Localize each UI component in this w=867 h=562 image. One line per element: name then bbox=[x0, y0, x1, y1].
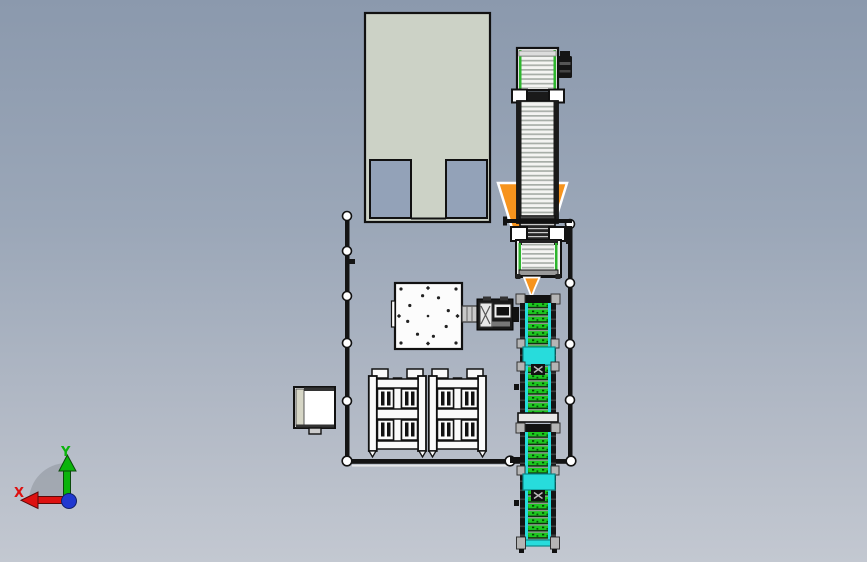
side-bracket bbox=[517, 362, 525, 371]
cabinet-bottom-edge bbox=[296, 425, 334, 428]
head-motor bbox=[558, 51, 572, 78]
head-cross-bar bbox=[526, 92, 550, 101]
section-end-plate bbox=[518, 413, 558, 422]
origin-ball bbox=[62, 494, 77, 509]
side-stub bbox=[514, 312, 519, 318]
pallet-rack-right[interactable] bbox=[429, 369, 486, 457]
chain-conveyor-2[interactable] bbox=[510, 423, 560, 553]
chain-conveyor-1[interactable] bbox=[514, 294, 560, 422]
frame-stub bbox=[510, 457, 520, 463]
rotary-table[interactable] bbox=[392, 283, 463, 349]
foot bbox=[519, 549, 524, 553]
cad-viewport[interactable]: X Y bbox=[0, 0, 867, 562]
side-stub bbox=[514, 500, 519, 506]
hopper[interactable] bbox=[365, 13, 490, 222]
part-marker bbox=[531, 490, 545, 501]
drop-arrow bbox=[524, 278, 540, 298]
model-canvas[interactable]: X Y bbox=[0, 0, 867, 562]
pallet-carrier[interactable] bbox=[523, 474, 555, 490]
motor-base bbox=[492, 322, 510, 327]
transfer-bottom-bar bbox=[519, 270, 558, 276]
transfer-edge-left bbox=[519, 243, 522, 272]
pallet-carrier[interactable] bbox=[523, 347, 555, 365]
foot-bracket bbox=[551, 537, 560, 549]
foot bbox=[552, 549, 557, 553]
transfer-conveyor[interactable] bbox=[516, 240, 562, 279]
corner-bracket bbox=[516, 423, 525, 433]
hopper-opening-right bbox=[446, 160, 487, 218]
corner-bracket bbox=[551, 294, 560, 304]
frame-notch bbox=[348, 259, 355, 264]
corner-bracket bbox=[516, 294, 525, 304]
control-cabinet[interactable] bbox=[294, 387, 335, 434]
foot-bracket bbox=[517, 537, 526, 549]
cabinet-top-edge bbox=[304, 388, 334, 392]
head-slats bbox=[521, 51, 554, 88]
corner-bracket bbox=[551, 423, 560, 433]
table-tab bbox=[392, 301, 396, 327]
transfer-edge-right bbox=[555, 243, 558, 272]
part-marker bbox=[531, 364, 545, 375]
motor-shaft bbox=[462, 306, 477, 322]
frame-highlight bbox=[352, 465, 512, 467]
transfer-foot bbox=[516, 274, 521, 279]
side-stub bbox=[514, 384, 519, 390]
side-bracket bbox=[551, 362, 559, 371]
mount-block bbox=[511, 227, 527, 241]
x-axis-label: X bbox=[14, 486, 24, 501]
tail-axle bbox=[505, 219, 572, 223]
transfer-slats bbox=[522, 243, 554, 271]
axle-cap bbox=[503, 217, 507, 226]
belt-slats bbox=[522, 103, 554, 222]
pallet-rack-left[interactable] bbox=[369, 369, 426, 457]
head-roller bbox=[519, 51, 556, 56]
cabinet-hinge-strip bbox=[296, 389, 304, 426]
hopper-opening-left bbox=[370, 160, 411, 218]
y-axis-label: Y bbox=[60, 445, 71, 460]
mount-block bbox=[549, 227, 565, 241]
gear-motor[interactable] bbox=[462, 297, 519, 331]
transfer-foot bbox=[556, 274, 561, 279]
orientation-triad[interactable]: X Y bbox=[14, 445, 77, 509]
cabinet-tab bbox=[309, 428, 321, 434]
belt-rail-right bbox=[554, 101, 559, 223]
belt-rail-left bbox=[517, 101, 522, 223]
